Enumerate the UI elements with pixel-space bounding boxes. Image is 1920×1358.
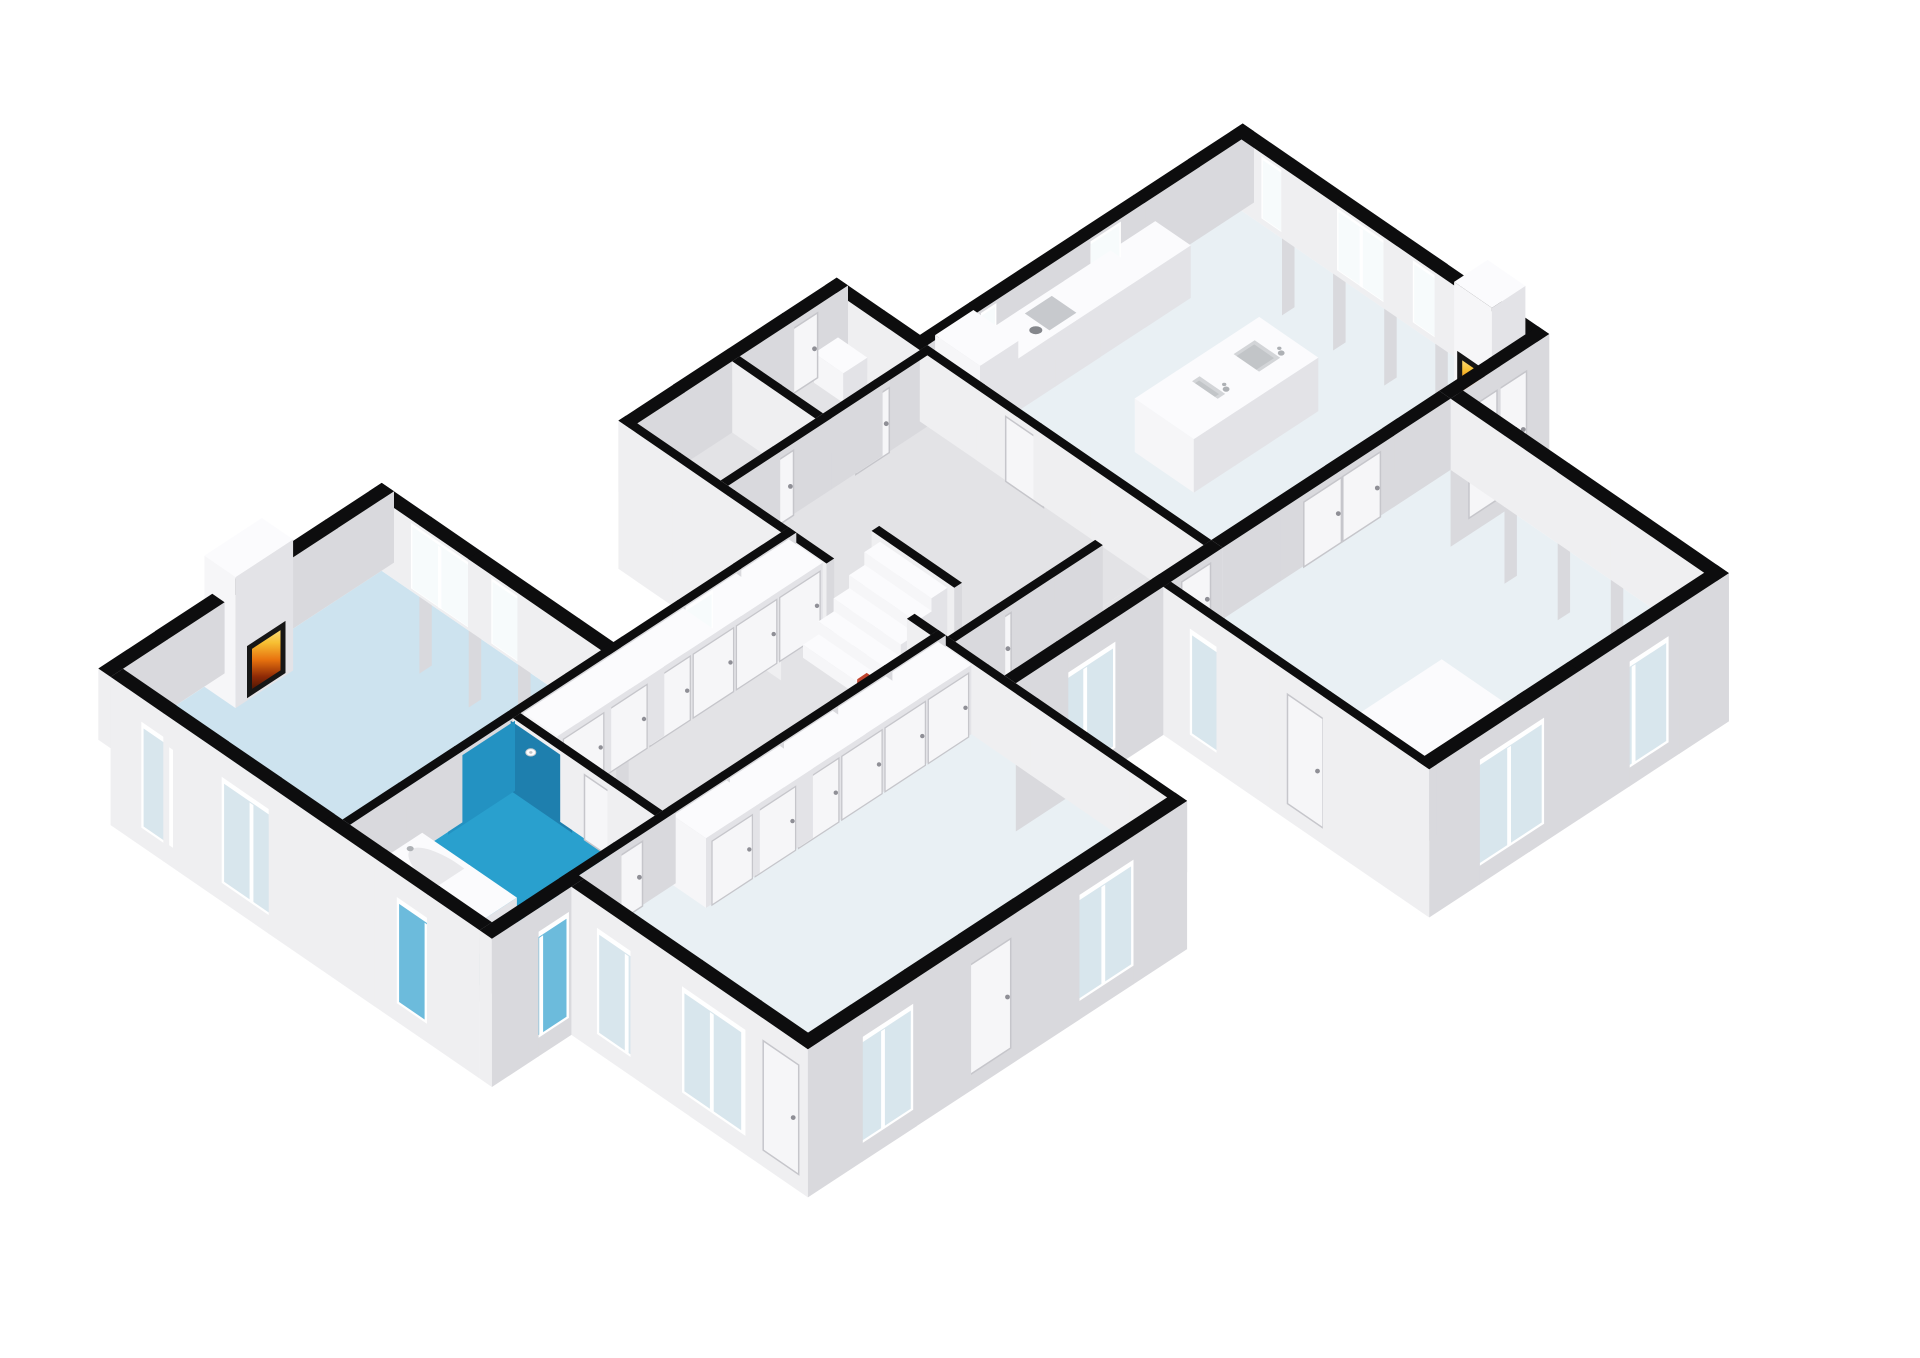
closet-row-south-door-handle-3: [834, 791, 838, 795]
door-vestibule-north-handle: [1006, 646, 1011, 651]
island-sinks-faucet-2: [1278, 350, 1285, 355]
wall-bath-south-face-s: [492, 908, 539, 1087]
shower-head-dot: [529, 751, 532, 754]
closet-row-south-door-handle-6: [963, 706, 967, 710]
wall-bath-south-face-w: [480, 930, 492, 1087]
door-bedright-double-handle-r: [1375, 486, 1380, 491]
window-bedright-south-2-mullion: [1632, 664, 1636, 765]
door-entry-south-1-handle: [788, 484, 793, 489]
window-living-west-1-mullion: [169, 747, 173, 848]
bathtub-faucet: [407, 846, 414, 851]
island-sinks-faucet-arc-1: [1222, 383, 1226, 386]
window-living-east-1-mullion: [438, 546, 441, 610]
window-bath-south-mullion: [539, 935, 543, 1036]
door-bedleft-west-panel: [763, 1041, 799, 1175]
door-entry-north-handle: [812, 346, 817, 351]
window-kitchen-east-2-mullion: [1360, 228, 1363, 288]
wall-living-north-face-w: [98, 669, 110, 749]
closet-row-north-door-handle-3: [685, 689, 689, 693]
closet-row-south-door-handle-2: [790, 819, 794, 823]
closet-row-north-door-handle-6: [815, 604, 819, 608]
cooktop-burner-2: [1029, 326, 1042, 334]
island-sinks-faucet-arc-2: [1277, 347, 1281, 350]
closet-row-south-door-handle-5: [920, 734, 924, 738]
door-bedright-northwest-handle: [1205, 597, 1210, 602]
closet-row-north-door-handle-2: [642, 717, 646, 721]
floorplan-3d-view: 3D isometric dollhouse floor plan render…: [0, 0, 1920, 1358]
door-bedright-double-handle-l: [1336, 511, 1341, 516]
window-bedright-south-1-mullion: [1507, 746, 1511, 847]
closet-row-south-door-handle-1: [747, 847, 751, 851]
window-bedleft-south-1-mullion: [881, 1029, 885, 1130]
door-bedleft-north-handle: [637, 875, 642, 880]
closet-row-south-door-handle-4: [877, 762, 881, 766]
closet-row-north-door-handle-1: [599, 745, 603, 749]
window-living-west-2-mullion: [250, 803, 254, 904]
door-bedright-west-handle: [1315, 769, 1320, 774]
closet-row-north-door-handle-5: [772, 632, 776, 636]
wall-bedright-west-face-s: [1429, 764, 1437, 840]
window-bedleft-west-1-mullion: [625, 954, 629, 1055]
door-bedleft-west-handle: [791, 1115, 796, 1120]
door-bedleft-south-handle: [1005, 995, 1010, 1000]
door-entry-south-2-handle: [884, 421, 889, 426]
window-bedleft-south-2-mullion: [1101, 885, 1105, 986]
closet-row-north-door-handle-4: [728, 660, 732, 664]
floorplan-svg: [0, 0, 1920, 1358]
island-sinks-faucet-1: [1223, 387, 1230, 392]
door-bedright-west-panel: [1288, 694, 1324, 828]
window-bedleft-west-2-mullion: [710, 1012, 714, 1113]
